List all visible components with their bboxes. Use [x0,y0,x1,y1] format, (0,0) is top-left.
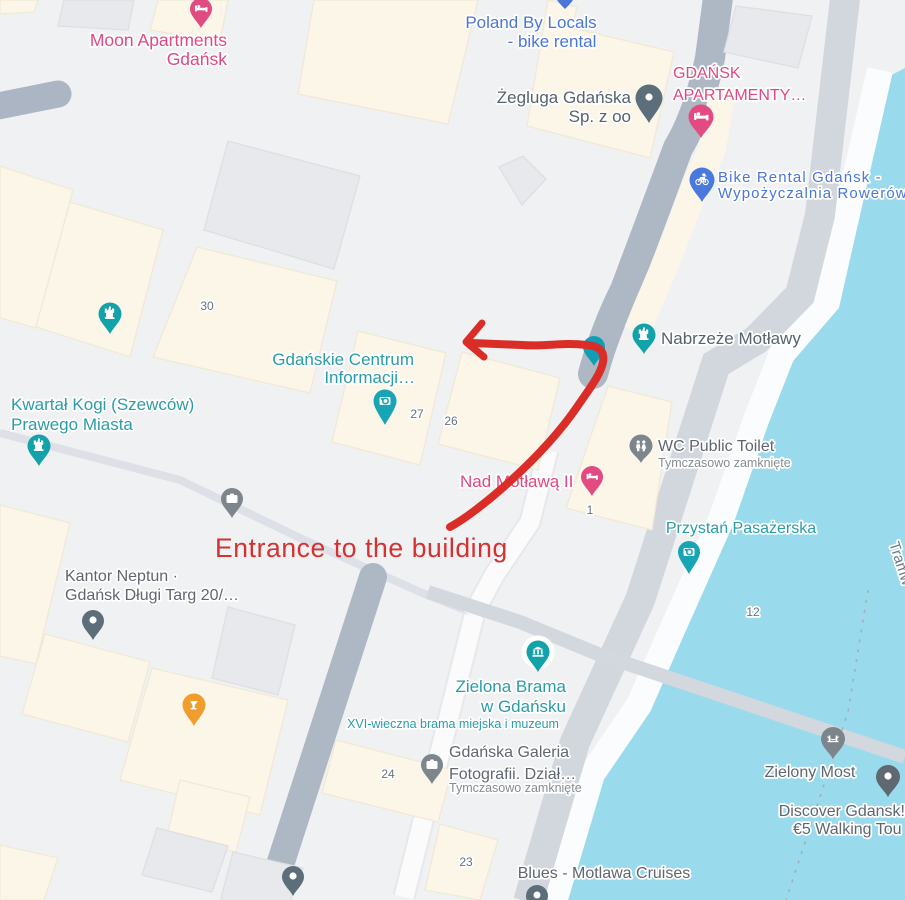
svg-text:Discover Gdansk!: Discover Gdansk! [779,803,905,820]
svg-text:Entrance to the building: Entrance to the building [215,533,508,563]
svg-text:Kantor Neptun ·: Kantor Neptun · [65,568,178,585]
svg-text:Zielony Most: Zielony Most [765,764,856,781]
svg-text:Sp. z oo: Sp. z oo [569,107,631,126]
svg-text:Wypożyczalnia Rowerów: Wypożyczalnia Rowerów [718,185,905,202]
svg-text:GDAŃSK: GDAŃSK [673,63,741,82]
svg-text:WC Public Toilet: WC Public Toilet [658,438,775,455]
svg-text:Informacji…: Informacji… [324,368,415,387]
svg-text:Blues - Motlawa Cruises: Blues - Motlawa Cruises [518,865,691,882]
svg-text:24: 24 [381,767,395,781]
svg-text:APARTAMENTY…: APARTAMENTY… [673,87,806,104]
svg-text:Zielona Brama: Zielona Brama [455,677,566,696]
svg-text:Gdańska Galeria: Gdańska Galeria [449,744,569,761]
svg-text:- bike rental: - bike rental [508,32,597,51]
svg-text:w Gdańsku: w Gdańsku [480,697,566,716]
svg-text:23: 23 [459,855,473,869]
svg-text:Gdańsk: Gdańsk [167,49,228,69]
svg-text:Przystań Pasażerska: Przystań Pasażerska [666,520,816,537]
svg-text:30: 30 [200,299,214,313]
svg-text:Bike Rental Gdańsk -: Bike Rental Gdańsk - [718,169,882,186]
svg-text:Moon Apartments: Moon Apartments [90,30,227,50]
svg-text:Nabrzeże Motławy: Nabrzeże Motławy [661,329,801,348]
svg-text:Poland By Locals: Poland By Locals [465,13,596,32]
svg-text:Gdańskie Centrum: Gdańskie Centrum [272,350,414,369]
svg-text:Tymczasowo zamknięte: Tymczasowo zamknięte [449,781,582,795]
svg-text:Tymczasowo zamknięte: Tymczasowo zamknięte [658,456,791,470]
svg-text:Gdańsk Długi Targ 20/…: Gdańsk Długi Targ 20/… [65,587,239,604]
svg-text:XVI-wieczna brama miejska i mu: XVI-wieczna brama miejska i muzeum [347,717,559,731]
svg-text:1: 1 [587,503,594,517]
svg-text:€5 Walking Tou: €5 Walking Tou [793,821,902,838]
svg-text:26: 26 [444,414,458,428]
svg-text:Kwartał Kogi (Szewców): Kwartał Kogi (Szewców) [11,395,194,414]
svg-text:Prawego Miasta: Prawego Miasta [11,415,133,434]
svg-text:27: 27 [410,407,424,421]
svg-text:Żegluga Gdańska: Żegluga Gdańska [497,88,632,107]
svg-text:12: 12 [746,605,760,619]
